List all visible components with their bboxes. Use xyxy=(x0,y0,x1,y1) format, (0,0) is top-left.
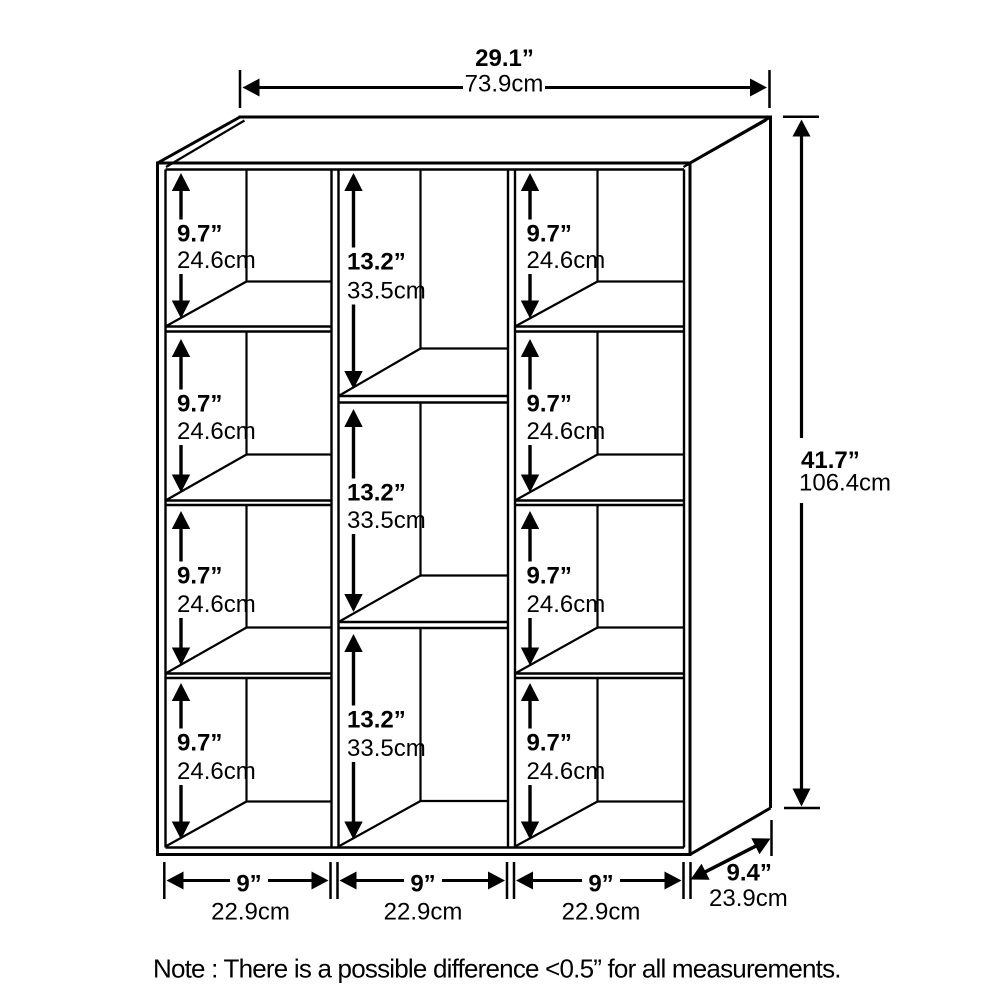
svg-text:9.7”: 9.7” xyxy=(527,730,572,757)
svg-text:9.7”: 9.7” xyxy=(177,563,222,590)
svg-text:22.9cm: 22.9cm xyxy=(562,899,641,926)
svg-text:29.1”: 29.1” xyxy=(475,45,534,72)
svg-text:33.5cm: 33.5cm xyxy=(347,507,426,534)
svg-text:9.4”: 9.4” xyxy=(727,860,772,887)
svg-text:73.9cm: 73.9cm xyxy=(465,71,544,98)
svg-text:24.6cm: 24.6cm xyxy=(177,247,256,274)
svg-text:13.2”: 13.2” xyxy=(347,707,406,734)
svg-text:9.7”: 9.7” xyxy=(527,391,572,418)
svg-text:9”: 9” xyxy=(236,871,261,898)
svg-text:106.4cm: 106.4cm xyxy=(799,470,891,497)
svg-text:23.9cm: 23.9cm xyxy=(709,885,788,912)
svg-text:9.7”: 9.7” xyxy=(177,221,222,248)
svg-text:9.7”: 9.7” xyxy=(177,730,222,757)
svg-text:13.2”: 13.2” xyxy=(347,480,406,507)
svg-text:24.6cm: 24.6cm xyxy=(177,591,256,618)
svg-text:13.2”: 13.2” xyxy=(347,249,406,276)
svg-text:24.6cm: 24.6cm xyxy=(177,418,256,445)
svg-text:24.6cm: 24.6cm xyxy=(527,591,606,618)
svg-text:24.6cm: 24.6cm xyxy=(527,247,606,274)
svg-text:9.7”: 9.7” xyxy=(177,391,222,418)
svg-text:9.7”: 9.7” xyxy=(527,563,572,590)
svg-text:33.5cm: 33.5cm xyxy=(347,735,426,762)
svg-text:24.6cm: 24.6cm xyxy=(527,418,606,445)
svg-text:Note : There is a possible dif: Note : There is a possible difference <0… xyxy=(153,954,841,984)
svg-text:9.7”: 9.7” xyxy=(527,221,572,248)
svg-text:33.5cm: 33.5cm xyxy=(347,278,426,305)
svg-text:9”: 9” xyxy=(410,871,435,898)
svg-text:24.6cm: 24.6cm xyxy=(177,758,256,785)
svg-text:22.9cm: 22.9cm xyxy=(384,899,463,926)
svg-text:9”: 9” xyxy=(588,871,613,898)
svg-text:22.9cm: 22.9cm xyxy=(211,899,290,926)
svg-text:24.6cm: 24.6cm xyxy=(527,758,606,785)
